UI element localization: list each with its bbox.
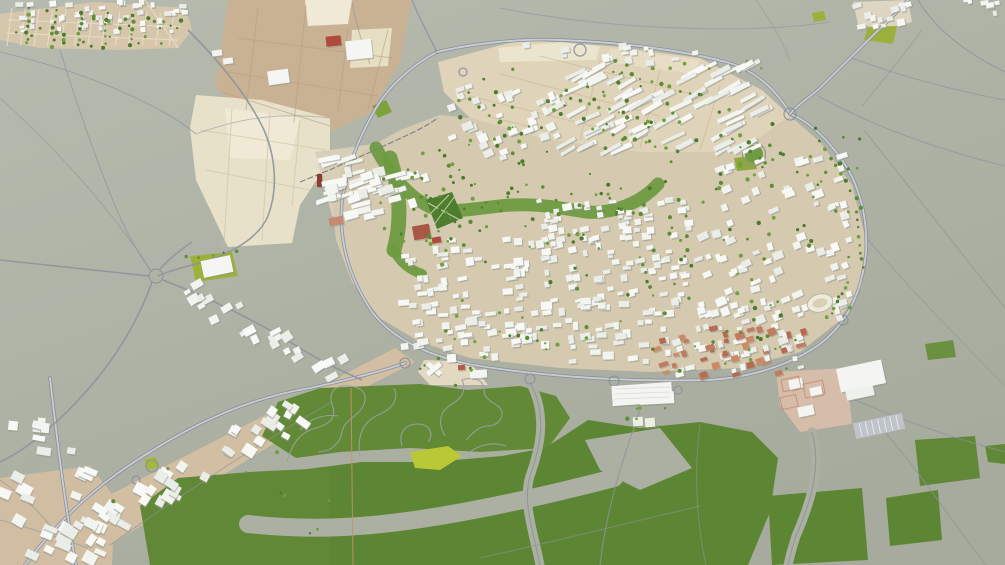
city-3d-scene [0,0,1005,565]
building-south-warehouse [640,391,676,406]
building-garden-shed-b [645,418,657,429]
building-white-warehouse-top [345,39,374,62]
forest-forest-se [768,488,868,565]
forest-forest-e2 [886,490,942,546]
zone-cream-top [305,0,352,26]
forest-forest-e1 [915,436,980,486]
building-warehouse-mid [267,68,291,86]
city-3d-render-viewport[interactable] [0,0,1005,565]
building-red-warehouse [326,35,343,48]
forest-hill-park [262,384,570,458]
building-garden-shed-a [633,417,645,428]
